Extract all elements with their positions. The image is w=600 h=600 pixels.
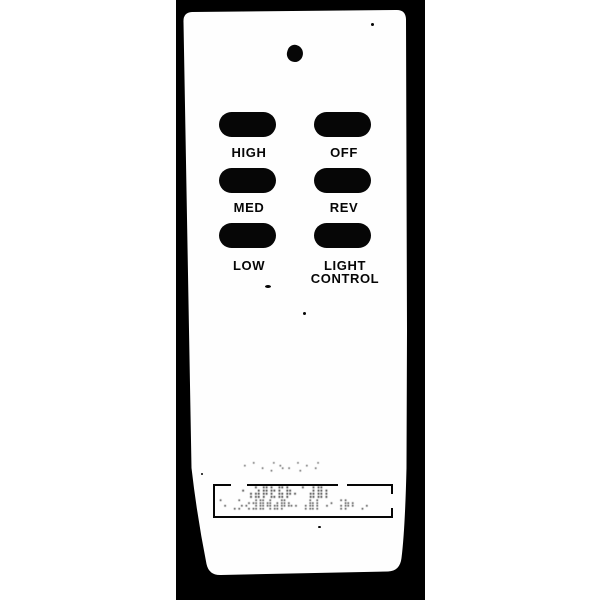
plate-border-gap	[391, 494, 395, 508]
light-control-label-line2: CONTROL	[311, 271, 379, 286]
scan-speck	[318, 526, 321, 528]
off-button-label: OFF	[299, 146, 389, 159]
illegible-specks-above-plate: ⠂⠁⠄⡈⠢⠄⢁⠂⠌	[243, 461, 323, 471]
scan-speck	[265, 285, 271, 288]
low-button[interactable]	[219, 223, 276, 248]
scan-speck	[201, 473, 203, 475]
rev-button-label: REV	[299, 201, 389, 214]
illegible-plate-text-line1: ⠐⢠⣵⡿⣗⣯⡷⠄⠁⣼⣿⡆	[238, 486, 332, 499]
scan-speck	[303, 312, 306, 315]
high-button[interactable]	[219, 112, 276, 137]
scanned-photo: HIGH OFF MED REV LOW LIGHT CONTROL ⠂⠁⠄⡈⠢…	[0, 0, 600, 600]
med-button-label: MED	[204, 201, 294, 214]
low-button-label: LOW	[204, 259, 294, 272]
plate-border-gap	[338, 483, 347, 487]
med-button[interactable]	[219, 168, 276, 193]
light-control-button[interactable]	[314, 223, 371, 248]
illegible-plate-text-line2: ⠈⠄⢀⡡⢔⣺⣿⢾⣴⡿⠦⠄⢠⣷⡇⠠⠂⢨⡷⠆⢀⠄	[216, 499, 372, 511]
scan-speck	[371, 23, 374, 26]
high-button-label: HIGH	[204, 146, 294, 159]
light-control-button-label: LIGHT CONTROL	[300, 259, 390, 285]
off-button[interactable]	[314, 112, 371, 137]
rev-button[interactable]	[314, 168, 371, 193]
